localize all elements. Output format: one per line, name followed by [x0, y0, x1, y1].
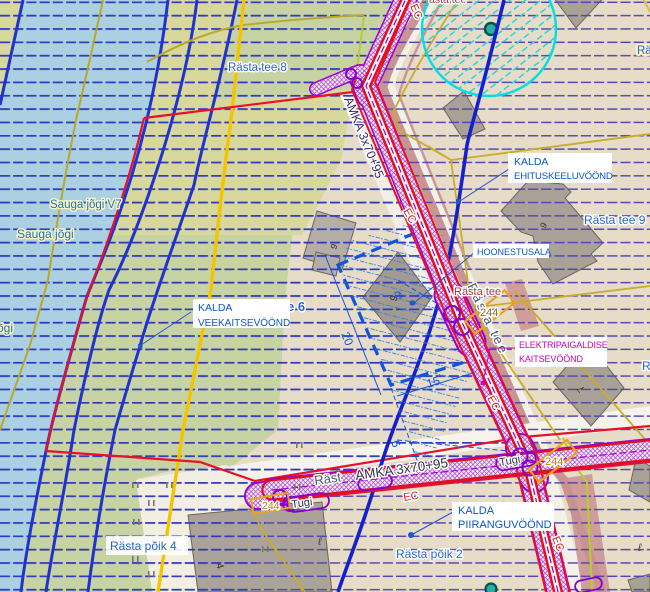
- svg-text:KALDA: KALDA: [458, 505, 495, 517]
- svg-text:ästa tee: ästa tee: [429, 0, 467, 6]
- svg-text:R: R: [642, 359, 650, 373]
- svg-text:Rästa tee: Rästa tee: [454, 286, 501, 298]
- svg-text:244: 244: [545, 456, 563, 468]
- svg-text:Rästa põik 4: Rästa põik 4: [110, 539, 177, 553]
- svg-text:EC: EC: [403, 490, 420, 504]
- svg-text:Rästa põik 2: Rästa põik 2: [396, 547, 463, 561]
- svg-text:244: 244: [262, 500, 280, 512]
- svg-text:KALDA: KALDA: [514, 156, 548, 168]
- svg-text:ℓ: ℓ: [317, 536, 322, 548]
- svg-text:Sauga jõgi V7: Sauga jõgi V7: [50, 199, 122, 211]
- svg-text:õgi: õgi: [0, 321, 13, 335]
- svg-text:KALDA: KALDA: [198, 302, 232, 314]
- svg-text:HOONESTUSALA: HOONESTUSALA: [477, 247, 551, 257]
- svg-text:PIIRANGUVÖÖND: PIIRANGUVÖÖND: [458, 519, 552, 531]
- svg-text:Sauga jõgi: Sauga jõgi: [17, 227, 74, 241]
- svg-text:ℓ: ℓ: [637, 542, 642, 554]
- svg-text:Rästa tee 9: Rästa tee 9: [584, 213, 646, 227]
- svg-text:Rästa tee 8: Rästa tee 8: [228, 62, 287, 74]
- svg-text:244: 244: [480, 307, 498, 319]
- svg-text:Rä: Rä: [637, 45, 650, 57]
- svg-text:EHITUSKEELUVÖÖND: EHITUSKEELUVÖÖND: [514, 171, 613, 182]
- svg-text:KAITSEVÖÖND: KAITSEVÖÖND: [519, 354, 584, 364]
- svg-text:ELEKTRIPAIGALDISE: ELEKTRIPAIGALDISE: [519, 340, 608, 350]
- svg-text:VEEKAITSEVÖÖND: VEEKAITSEVÖÖND: [198, 317, 290, 329]
